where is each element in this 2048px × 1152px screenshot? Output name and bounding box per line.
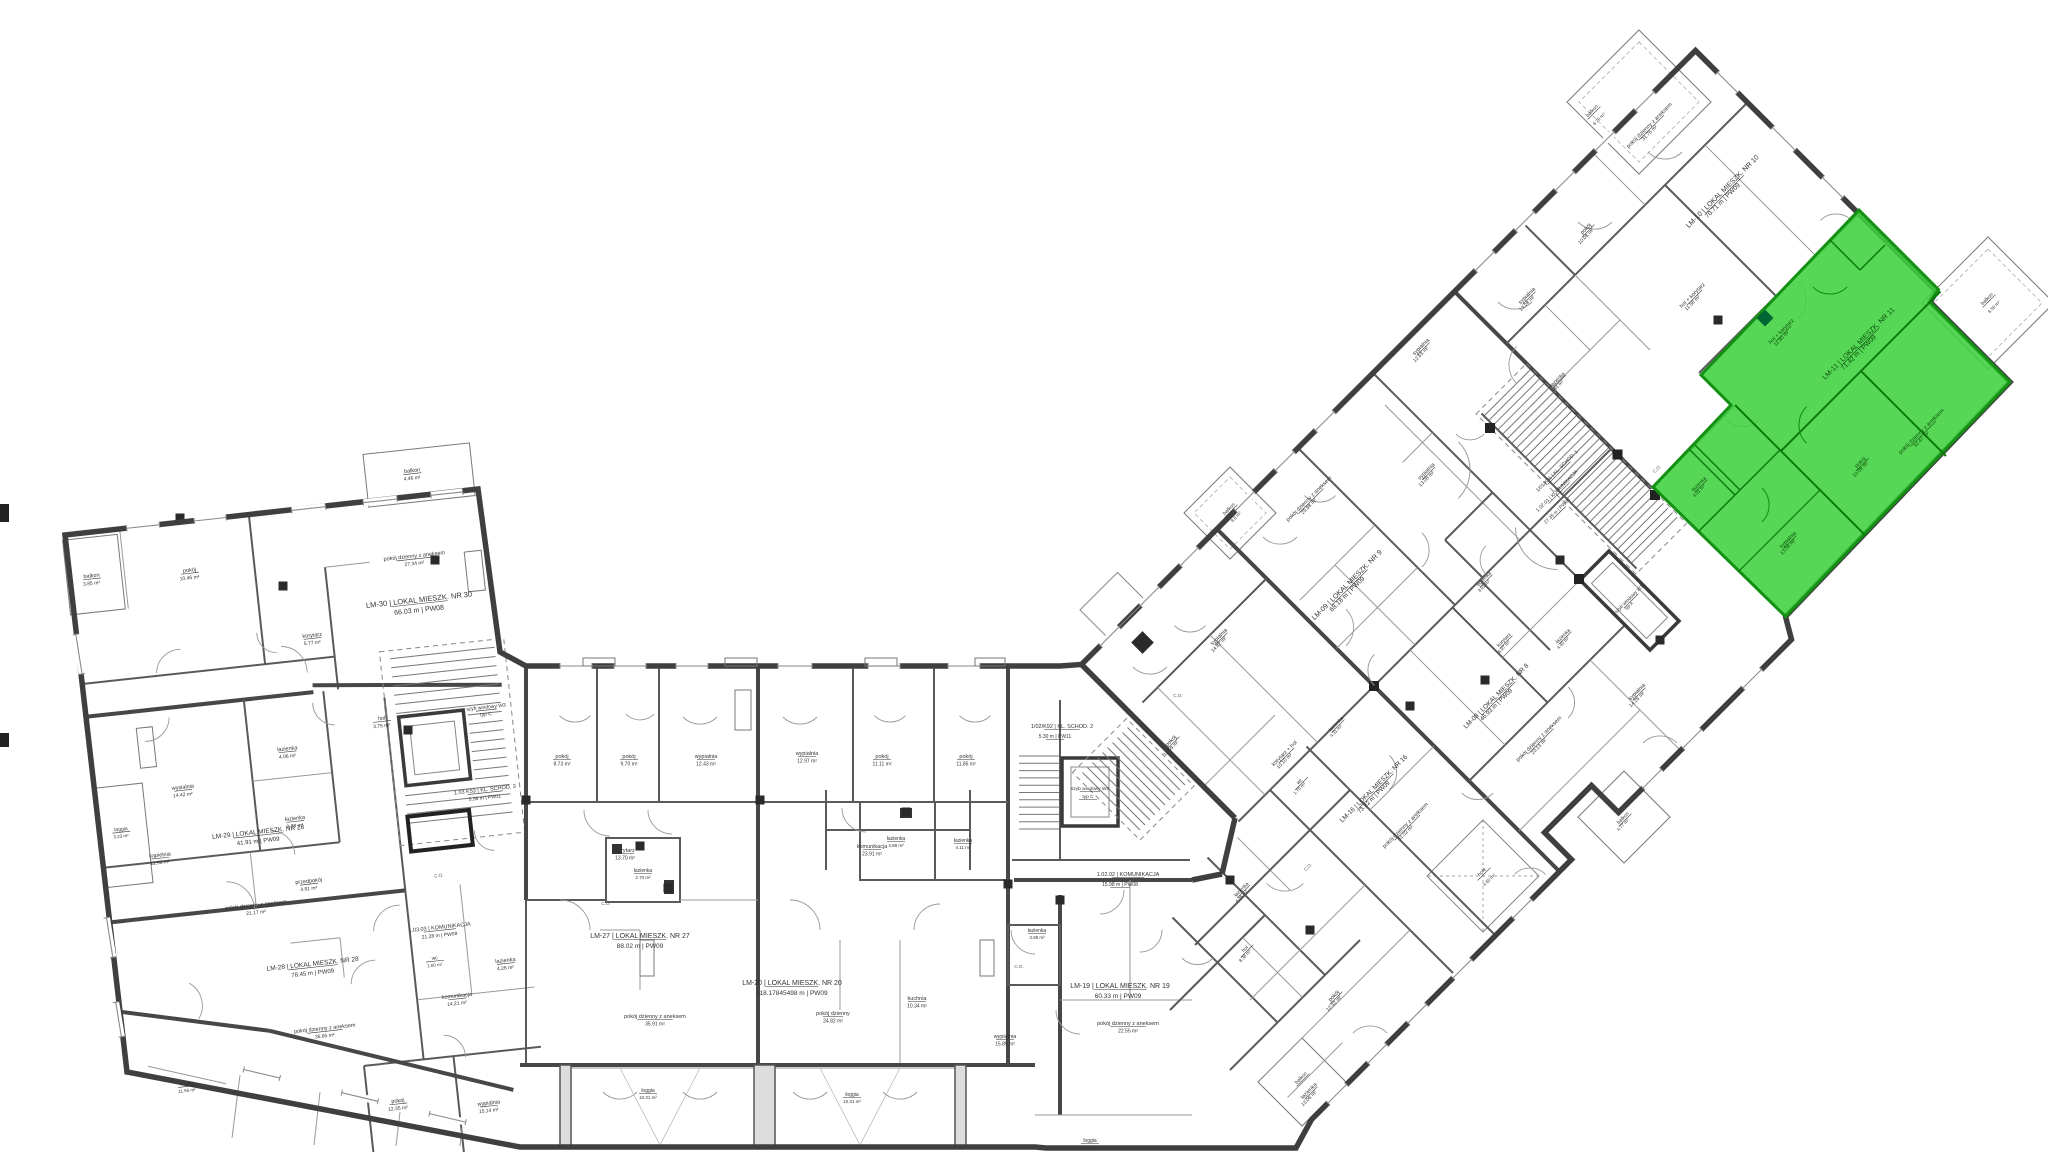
svg-text:35.91 m²: 35.91 m²	[645, 1022, 665, 1028]
svg-text:88.02 m | PW09: 88.02 m | PW09	[617, 943, 664, 950]
svg-text:pokój dzienny z aneksem: pokój dzienny z aneksem	[1097, 1021, 1159, 1027]
svg-text:13.70 m²: 13.70 m²	[615, 856, 635, 862]
svg-text:LM-20 | LOKAL MIESZK. NR 20: LM-20 | LOKAL MIESZK. NR 20	[742, 980, 842, 987]
svg-text:4.11 m²: 4.11 m²	[956, 845, 971, 850]
svg-text:pokój dzienny z aneksem: pokój dzienny z aneksem	[624, 1014, 686, 1020]
svg-text:pokój: pokój	[875, 754, 888, 760]
svg-text:szyb windowy W2: szyb windowy W2	[1071, 786, 1109, 792]
svg-text:11.85 m²: 11.85 m²	[956, 762, 976, 768]
svg-text:łazienka: łazienka	[634, 868, 653, 874]
svg-text:kuchnia: kuchnia	[908, 996, 928, 1002]
svg-text:23.91 m²: 23.91 m²	[862, 852, 882, 858]
svg-text:10.31 m²: 10.31 m²	[843, 1099, 861, 1104]
svg-text:22.55 m²: 22.55 m²	[1118, 1029, 1138, 1035]
svg-text:wypialnia: wypialnia	[795, 751, 820, 757]
svg-text:5.30 m | PW11: 5.30 m | PW11	[1039, 734, 1072, 740]
svg-text:8.73 m²: 8.73 m²	[554, 762, 571, 768]
svg-text:60.33 m | PW09: 60.33 m | PW09	[1095, 993, 1142, 1000]
svg-text:pokój: pokój	[959, 754, 972, 760]
svg-text:118.17845498 m | PW09: 118.17845498 m | PW09	[756, 990, 828, 997]
svg-text:10.31 m²: 10.31 m²	[639, 1095, 657, 1100]
svg-text:łazienka: łazienka	[954, 838, 973, 844]
svg-text:15.98 m | PW08: 15.98 m | PW08	[1102, 882, 1138, 888]
svg-text:10.34 m²: 10.34 m²	[907, 1004, 927, 1010]
svg-text:wypialnia: wypialnia	[694, 754, 719, 760]
svg-text:LM-19 | LOKAL MIESZK. NR 19: LM-19 | LOKAL MIESZK. NR 19	[1070, 983, 1170, 990]
svg-text:C.O.: C.O.	[1173, 693, 1182, 698]
svg-text:C.O.: C.O.	[601, 901, 610, 906]
svg-text:3.98 m²: 3.98 m²	[1029, 935, 1045, 940]
svg-text:komunikacja: komunikacja	[857, 844, 889, 850]
svg-text:12.43 m²: 12.43 m²	[696, 762, 716, 768]
svg-text:3.88 m²: 3.88 m²	[888, 843, 904, 848]
svg-text:pokój: pokój	[622, 754, 635, 760]
svg-text:loggia: loggia	[1083, 1138, 1097, 1144]
svg-text:24.82 m²: 24.82 m²	[823, 1019, 843, 1025]
svg-text:2.70 m²: 2.70 m²	[635, 875, 651, 880]
svg-text:LM-27 | LOKAL MIESZK. NR 27: LM-27 | LOKAL MIESZK. NR 27	[590, 933, 690, 940]
svg-text:pokój: pokój	[555, 754, 568, 760]
svg-text:łazienka: łazienka	[1028, 928, 1047, 934]
svg-text:1.02.02 | KOMUNIKACJA: 1.02.02 | KOMUNIKACJA	[1097, 872, 1160, 878]
svg-text:korytarz: korytarz	[615, 848, 635, 854]
svg-text:C.O.: C.O.	[1014, 964, 1023, 969]
svg-text:loggia: loggia	[845, 1092, 859, 1098]
svg-text:9.75 m²: 9.75 m²	[1082, 1145, 1098, 1150]
svg-text:łazienka: łazienka	[887, 836, 906, 842]
svg-text:15.89 m²: 15.89 m²	[995, 1042, 1015, 1048]
svg-text:12.97 m²: 12.97 m²	[797, 759, 817, 765]
svg-text:wypialnia: wypialnia	[993, 1034, 1018, 1040]
svg-text:pokój dzienny: pokój dzienny	[816, 1011, 850, 1017]
svg-text:11.11 m²: 11.11 m²	[873, 762, 892, 768]
svg-text:typ C: typ C	[1082, 794, 1094, 800]
svg-text:typ C: typ C	[480, 711, 493, 718]
svg-text:1/02/K92 | KL. SCHOD. 2: 1/02/K92 | KL. SCHOD. 2	[1031, 724, 1093, 730]
svg-text:loggia: loggia	[641, 1088, 655, 1094]
svg-text:C.O.: C.O.	[434, 873, 444, 879]
svg-text:9.70 m²: 9.70 m²	[621, 762, 638, 768]
